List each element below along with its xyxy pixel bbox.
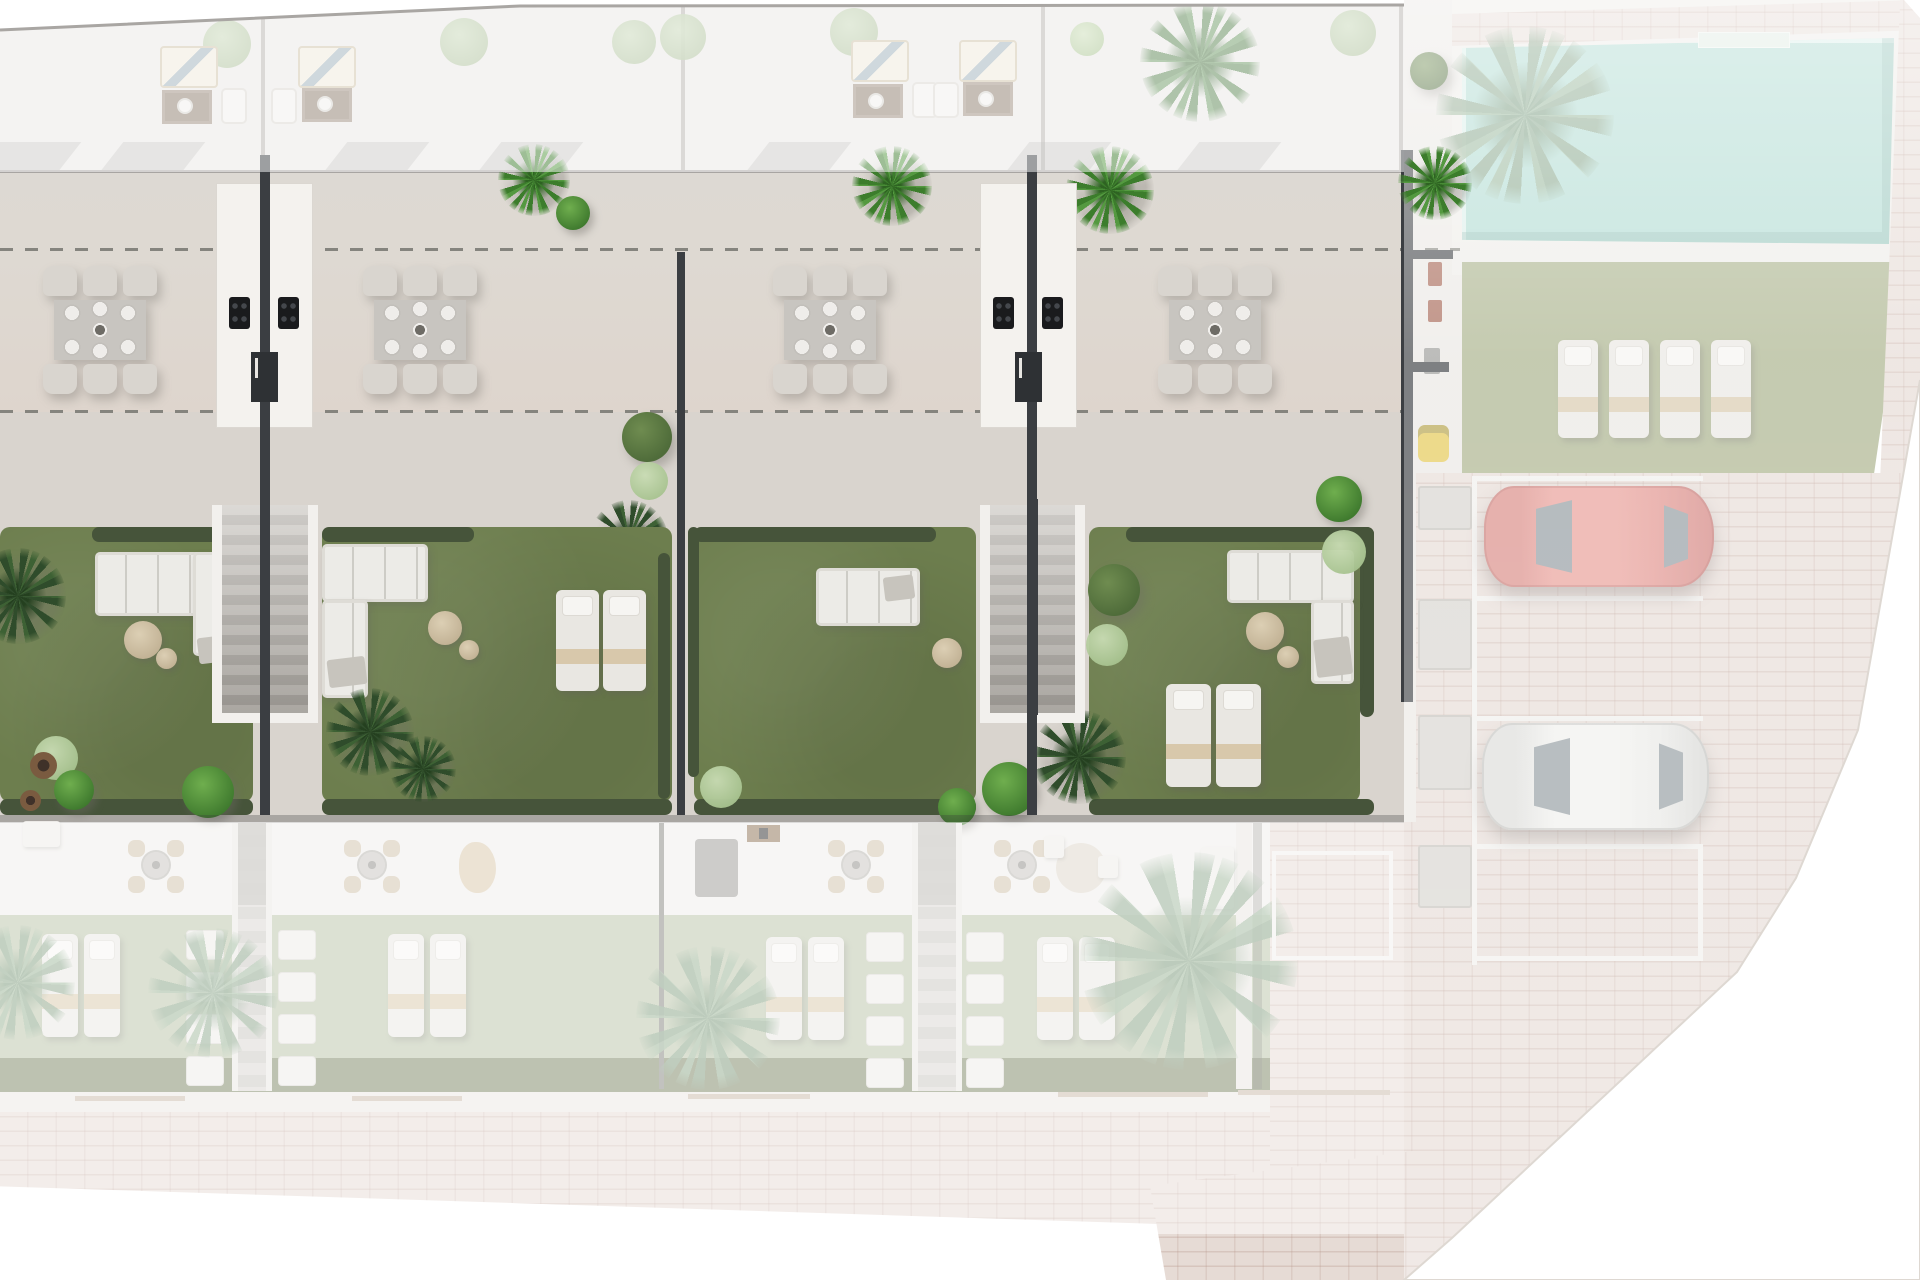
party-wall — [1027, 155, 1037, 815]
pouf — [1246, 612, 1284, 650]
roof-divider-line — [261, 6, 265, 170]
garden-bush — [182, 766, 234, 818]
storage-box — [1418, 599, 1472, 670]
lower-desk — [23, 821, 60, 847]
garden-bush — [54, 770, 94, 810]
roof-side-table — [868, 93, 884, 109]
roof-lounge-sofa — [959, 40, 1017, 82]
step-pad — [966, 1016, 1004, 1046]
lower-sun-lounger — [388, 934, 424, 1037]
lower-sofa — [695, 839, 738, 897]
pool-lounger — [1660, 340, 1700, 438]
roof-side-table — [177, 98, 193, 114]
site-plan: Residential development site plan – top-… — [0, 0, 1920, 1280]
lower-palm — [148, 928, 278, 1058]
curb-line — [1058, 1092, 1208, 1097]
hedge — [322, 799, 672, 815]
gate-wall — [1401, 362, 1449, 372]
fire-pit — [30, 752, 57, 779]
terrace-dining-set — [755, 268, 905, 392]
pouf — [459, 640, 479, 660]
terrace-dining-set — [345, 268, 495, 392]
step-pad — [866, 974, 904, 1004]
cooktop — [278, 297, 299, 329]
roof-palm — [1140, 2, 1260, 122]
mini-car-yellow — [1418, 425, 1449, 462]
party-wall — [260, 155, 270, 815]
entry-door — [251, 352, 278, 402]
step-pad — [866, 1058, 904, 1088]
pool-lounger — [1558, 340, 1598, 438]
patio-bush — [630, 462, 668, 500]
pouf — [932, 638, 962, 668]
setback-dashed-line — [0, 410, 1404, 413]
doormat — [1428, 300, 1442, 322]
storage-box — [1418, 486, 1472, 530]
parking-line — [1698, 849, 1703, 961]
sofa-throw — [883, 574, 916, 601]
roof-armchair — [933, 82, 959, 118]
garden-bush — [1316, 476, 1362, 522]
parking-line — [1477, 476, 1703, 481]
roof-tree — [660, 14, 706, 60]
step-pad — [278, 930, 316, 960]
pool-lounger — [1711, 340, 1751, 438]
hedge — [688, 527, 699, 777]
hanging-chair — [459, 842, 496, 893]
parking-court — [1416, 473, 1920, 1280]
sofa-throw — [326, 656, 367, 688]
car-red — [1484, 486, 1714, 587]
roof-lounge-sofa — [851, 40, 909, 82]
garden-tree — [1088, 564, 1140, 616]
roof-eave-line — [0, 170, 1404, 173]
lower-sideboard — [747, 825, 780, 842]
boundary-wall — [1401, 150, 1413, 702]
garden-shrub — [1322, 530, 1366, 574]
gate-palm — [1398, 146, 1472, 220]
curb-line — [75, 1096, 185, 1101]
garden-palm — [390, 736, 456, 802]
cooktop — [1042, 297, 1063, 329]
roof-side-table — [317, 96, 333, 112]
pool-lounger — [1609, 340, 1649, 438]
curb-line — [688, 1094, 810, 1099]
terrace-palm — [852, 146, 932, 226]
gate-wall — [1401, 250, 1453, 259]
storage-box — [1418, 845, 1472, 908]
terrace-palm — [1066, 146, 1154, 234]
curb-line — [1238, 1090, 1390, 1095]
lower-sun-lounger — [808, 937, 844, 1040]
roof-bush — [1070, 22, 1104, 56]
roof-divider-line — [1399, 4, 1403, 170]
party-wall — [677, 252, 685, 815]
parking-line — [1477, 596, 1703, 601]
roof-tree — [612, 20, 656, 64]
lower-sun-lounger — [1037, 937, 1073, 1040]
parking-line — [1477, 956, 1703, 961]
roof-side-table — [978, 91, 994, 107]
pouf — [1277, 646, 1299, 668]
sun-lounger — [603, 590, 646, 691]
step-pad — [278, 1014, 316, 1044]
parking-space-outline — [1272, 851, 1393, 960]
step-pad — [966, 1058, 1004, 1088]
step-pad — [866, 1016, 904, 1046]
pool-step — [1698, 32, 1790, 48]
roof-armchair — [221, 88, 247, 124]
car-white — [1482, 723, 1709, 830]
lower-chair — [1044, 836, 1064, 858]
lower-dining-set — [340, 836, 406, 896]
sofa-throw — [1313, 636, 1353, 678]
step-pad — [278, 972, 316, 1002]
parking-line — [1477, 844, 1703, 849]
storage-box — [1418, 715, 1472, 790]
hedge — [694, 527, 936, 542]
step-pad — [866, 932, 904, 962]
garden-sofa — [322, 544, 428, 602]
sun-lounger — [1166, 684, 1211, 787]
hedge — [694, 799, 976, 815]
fire-pit — [20, 790, 41, 811]
patio-tree — [622, 412, 672, 462]
sun-lounger — [1216, 684, 1261, 787]
curb-line — [352, 1096, 462, 1101]
pouf — [428, 611, 462, 645]
doormat — [1428, 262, 1442, 286]
roof-armchair — [271, 88, 297, 124]
lower-dining-set — [824, 836, 890, 896]
roof-tree — [440, 18, 488, 66]
hedge — [1089, 799, 1374, 815]
step-pad — [278, 1056, 316, 1086]
cooktop — [993, 297, 1014, 329]
lower-palm — [636, 946, 780, 1090]
hedge — [658, 553, 670, 799]
cooktop — [229, 297, 250, 329]
lower-sun-lounger — [430, 934, 466, 1037]
terrace-dining-set — [1140, 268, 1290, 392]
step-pad — [186, 1056, 224, 1086]
lower-dining-set — [124, 836, 190, 896]
roof-tree — [1330, 10, 1376, 56]
roof-lounge-sofa — [298, 46, 356, 88]
pouf — [156, 648, 177, 669]
terrace-dining-set — [25, 268, 175, 392]
terrace-bush — [556, 196, 590, 230]
garden-palm — [1032, 710, 1126, 804]
lower-sun-lounger — [84, 934, 120, 1037]
entry-door — [1015, 352, 1042, 402]
garden-shrub — [1086, 624, 1128, 666]
garden-shrub — [700, 766, 742, 808]
sun-lounger — [556, 590, 599, 691]
hedge — [322, 527, 474, 542]
parking-line — [1477, 716, 1703, 721]
step-pad — [966, 932, 1004, 962]
roof-lounge-sofa — [160, 46, 218, 88]
pool-tree — [1410, 52, 1448, 90]
lower-chair — [1098, 856, 1118, 878]
corner-palm — [1080, 852, 1298, 1070]
level-change-shadow — [0, 815, 1404, 823]
lower-garden-stairs — [912, 823, 962, 1091]
step-pad — [966, 974, 1004, 1004]
